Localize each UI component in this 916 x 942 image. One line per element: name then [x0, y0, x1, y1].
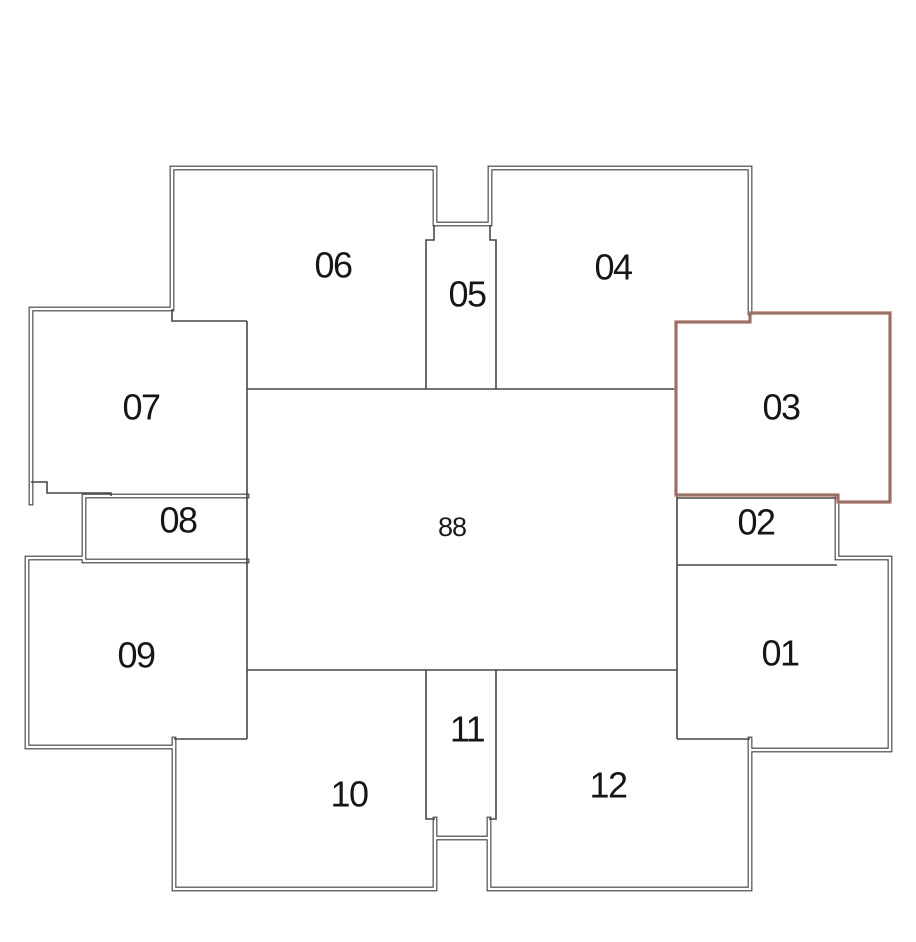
- room-09-area[interactable]: [27, 558, 247, 747]
- room-05-area[interactable]: [426, 225, 496, 389]
- room-08-area[interactable]: [84, 496, 247, 561]
- core-area: [247, 389, 677, 670]
- floor-plan-page: 01 02 03 04 05 06 07 08 09 10 11 12 88: [0, 0, 916, 942]
- room-01-area[interactable]: [677, 558, 890, 750]
- floor-plan-svg: 01 02 03 04 05 06 07 08 09 10 11 12 88: [0, 0, 916, 942]
- room-07-area[interactable]: [31, 309, 247, 496]
- room-03-area[interactable]: [676, 313, 890, 502]
- room-11-area[interactable]: [426, 670, 496, 838]
- room-02-area[interactable]: [677, 498, 837, 565]
